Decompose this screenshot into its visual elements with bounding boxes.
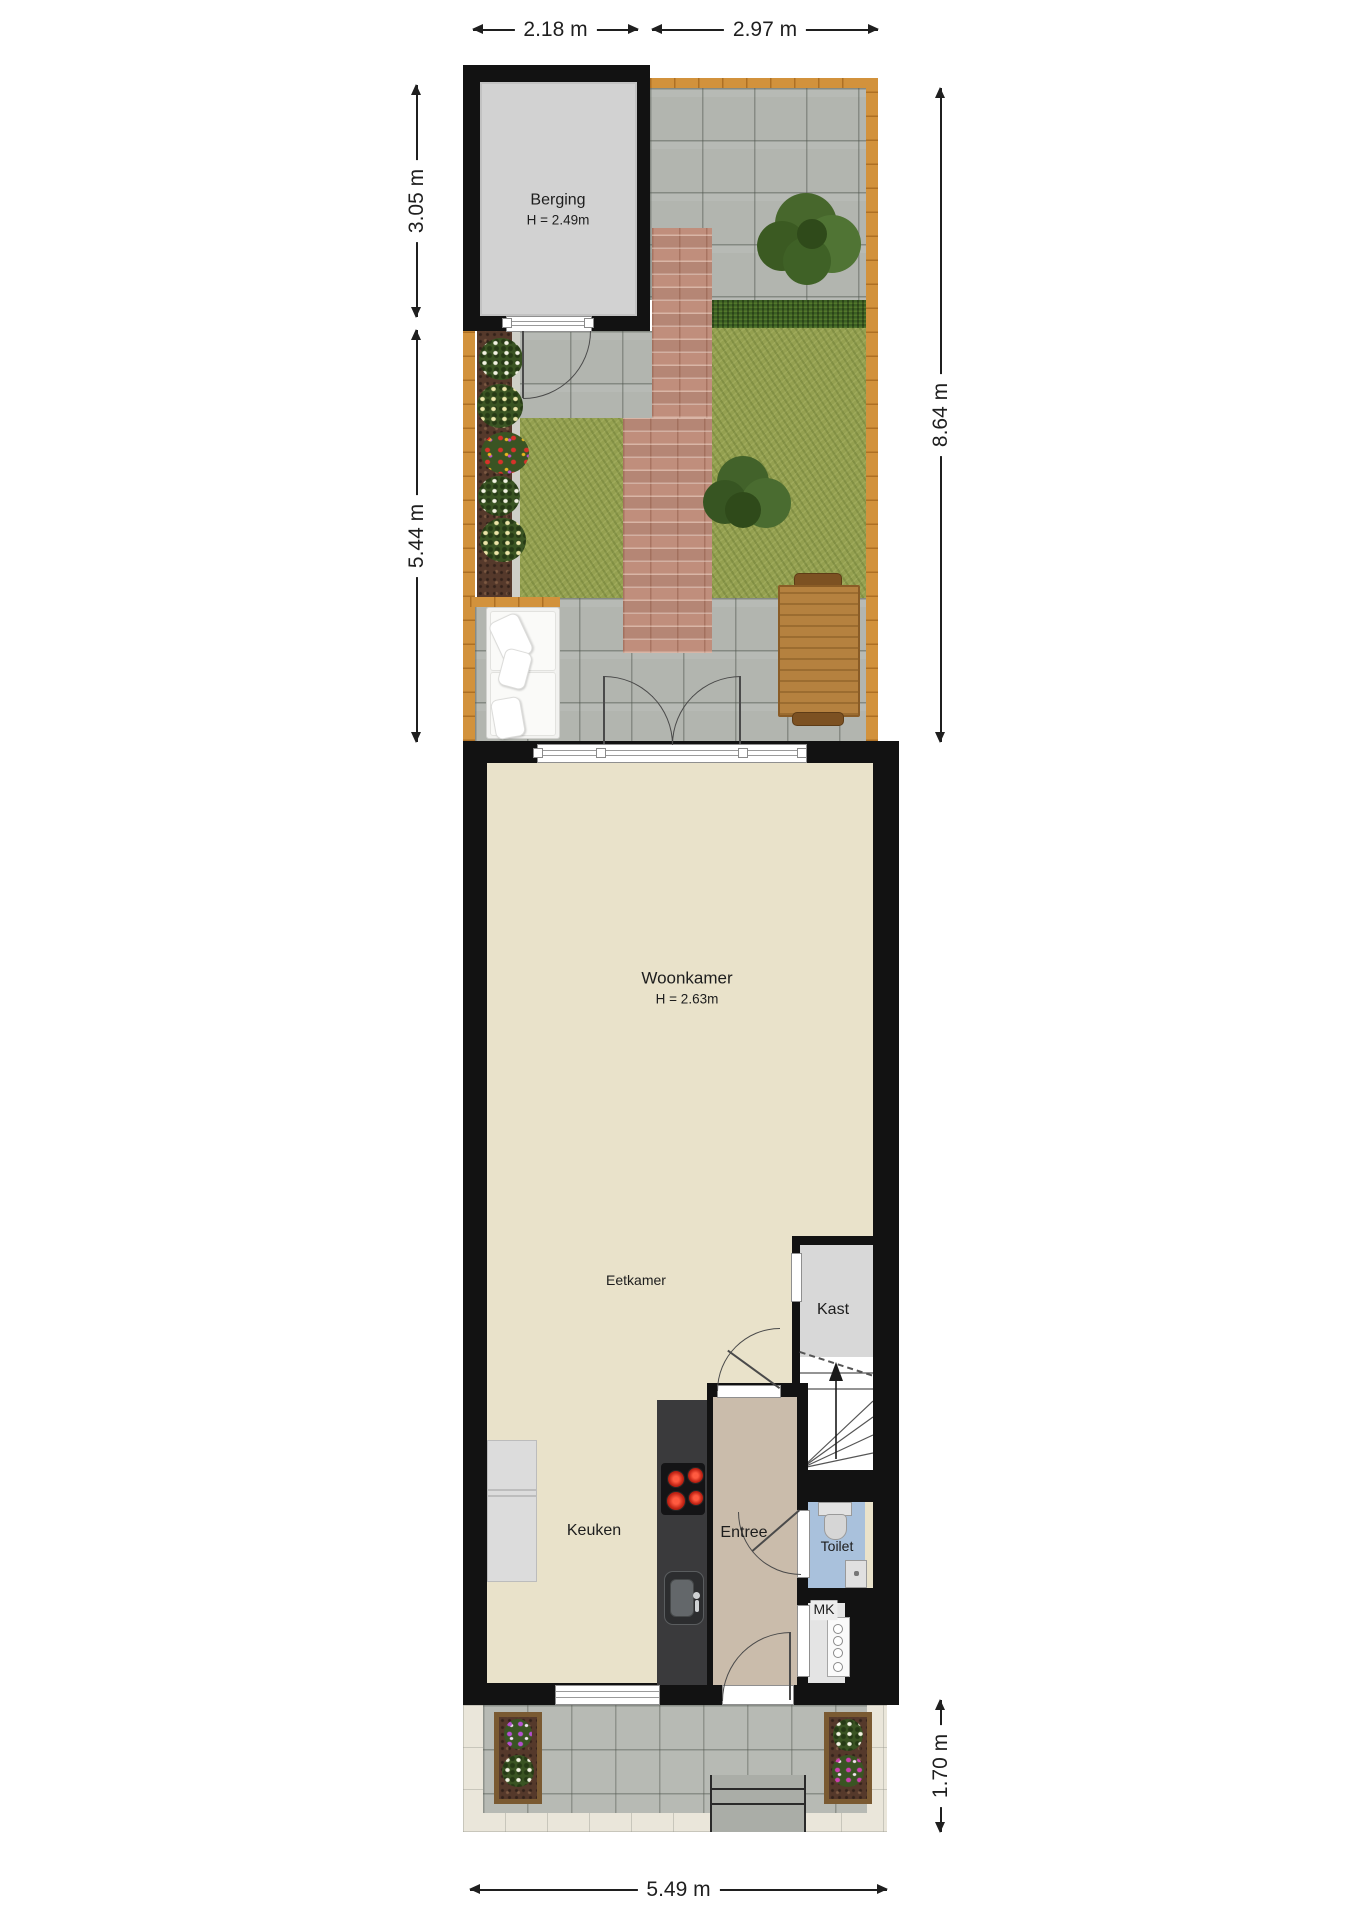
french-door-leaf-right — [739, 676, 741, 744]
kitchen-sink — [664, 1571, 704, 1625]
keuken-label: Keuken — [567, 1520, 621, 1542]
arrow-up-icon — [411, 84, 421, 95]
mk-label: MK — [811, 1600, 838, 1620]
woonkamer-height: H = 2.63m — [641, 990, 732, 1009]
arrow-right-icon — [868, 24, 879, 34]
arrow-left-icon — [651, 24, 662, 34]
dimension-left-lower-value: 5.44 m — [404, 495, 430, 577]
kast-label: Kast — [817, 1299, 849, 1321]
arrow-right-icon — [877, 1884, 888, 1894]
flower-bush-icon — [481, 432, 529, 474]
garden-hedge — [712, 300, 866, 328]
dimension-left-upper: 3.05 m — [405, 85, 429, 317]
kast-door-opening — [791, 1253, 802, 1302]
front-door-leaf — [789, 1632, 791, 1700]
shrub-icon — [703, 450, 797, 544]
door-jamb — [502, 318, 512, 328]
berging-label: Berging H = 2.49m — [527, 189, 590, 230]
meter-dial-icon — [833, 1648, 843, 1658]
fence-left — [463, 331, 475, 741]
floorplan-page: { "dimensions": { "top_left": "2.18 m", … — [0, 0, 1358, 1920]
arrow-up-icon — [935, 87, 945, 98]
fence-right — [866, 78, 878, 741]
front-planter-left — [494, 1712, 542, 1804]
dimension-top-right-value: 2.97 m — [724, 17, 806, 43]
berging-door-opening — [506, 316, 592, 332]
woonkamer-label: Woonkamer H = 2.63m — [641, 967, 732, 1010]
door-jamb — [738, 748, 748, 758]
dimension-top-right: 2.97 m — [652, 18, 878, 42]
dimension-right-back-value: 8.64 m — [928, 374, 954, 456]
toilet-bowl-icon — [824, 1514, 847, 1540]
garden-sofa — [486, 607, 560, 739]
toilet-label: Toilet — [821, 1537, 854, 1557]
entree-label: Entree — [720, 1522, 767, 1544]
berging-wall-top — [463, 65, 650, 82]
arrow-left-icon — [469, 1884, 480, 1894]
mk-opening — [797, 1605, 810, 1677]
garden-brick-path-lower — [623, 418, 712, 653]
door-jamb — [797, 748, 807, 758]
wall-under-stairs — [800, 1470, 873, 1502]
staircase — [800, 1357, 873, 1470]
dimension-right-front-garden: 1.70 m — [929, 1700, 953, 1832]
flower-bush-icon — [480, 518, 526, 562]
berging-wall-left — [463, 65, 480, 331]
kitchen-counter — [657, 1400, 707, 1685]
tree-icon — [757, 185, 869, 297]
rear-window — [537, 744, 807, 763]
garden-brick-path-upper — [652, 228, 712, 418]
dimension-bottom: 5.49 m — [470, 1878, 887, 1902]
floorplan-canvas: Berging H = 2.49m Woonkamer H = 2.63m Ee… — [0, 0, 1358, 1920]
door-jamb — [596, 748, 606, 758]
front-window — [555, 1685, 660, 1705]
front-walkway-steps — [710, 1775, 806, 1832]
dimension-top-left-value: 2.18 m — [514, 17, 596, 43]
woonkamer-name: Woonkamer — [641, 969, 732, 988]
arrow-down-icon — [935, 732, 945, 743]
dimension-top-left: 2.18 m — [473, 18, 638, 42]
cooktop — [661, 1463, 705, 1515]
arrow-down-icon — [935, 1822, 945, 1833]
meter-dial-icon — [833, 1662, 843, 1672]
berging-door-leaf — [522, 331, 524, 398]
arrow-right-icon — [628, 24, 639, 34]
house-wall-left — [463, 741, 487, 1705]
dimension-right-front-value: 1.70 m — [928, 1725, 954, 1807]
berging-name: Berging — [530, 191, 585, 208]
french-door-leaf-left — [603, 676, 605, 744]
front-planter-right — [824, 1712, 872, 1804]
house-wall-bottom — [463, 1683, 899, 1705]
house-wall-right — [873, 741, 899, 1705]
arrow-up-icon — [935, 1699, 945, 1710]
door-jamb — [533, 748, 543, 758]
arrow-down-icon — [411, 732, 421, 743]
dimension-right-back-garden: 8.64 m — [929, 88, 953, 742]
dimension-bottom-value: 5.49 m — [637, 1877, 719, 1903]
berging-wall-right — [637, 65, 650, 331]
kast-wall-top — [792, 1236, 873, 1245]
arrow-down-icon — [411, 307, 421, 318]
garden-grass-left — [520, 418, 623, 598]
meter-dial-icon — [833, 1624, 843, 1634]
flower-bush-icon — [479, 338, 523, 380]
eetkamer-label: Eetkamer — [606, 1271, 666, 1291]
garden-table — [778, 585, 860, 717]
fence-top — [650, 78, 878, 88]
dimension-left-upper-value: 3.05 m — [404, 160, 430, 242]
arrow-left-icon — [472, 24, 483, 34]
flower-bush-icon — [477, 384, 523, 428]
dimension-left-lower: 5.44 m — [405, 330, 429, 742]
toilet-sink-icon — [845, 1560, 867, 1588]
garden-bench — [792, 712, 844, 726]
kitchen-cabinet — [487, 1440, 537, 1582]
meter-dial-icon — [833, 1636, 843, 1646]
berging-height: H = 2.49m — [527, 212, 590, 231]
door-jamb — [584, 318, 594, 328]
flower-bush-icon — [478, 476, 520, 516]
arrow-up-icon — [411, 329, 421, 340]
sofa-frame — [470, 597, 560, 607]
